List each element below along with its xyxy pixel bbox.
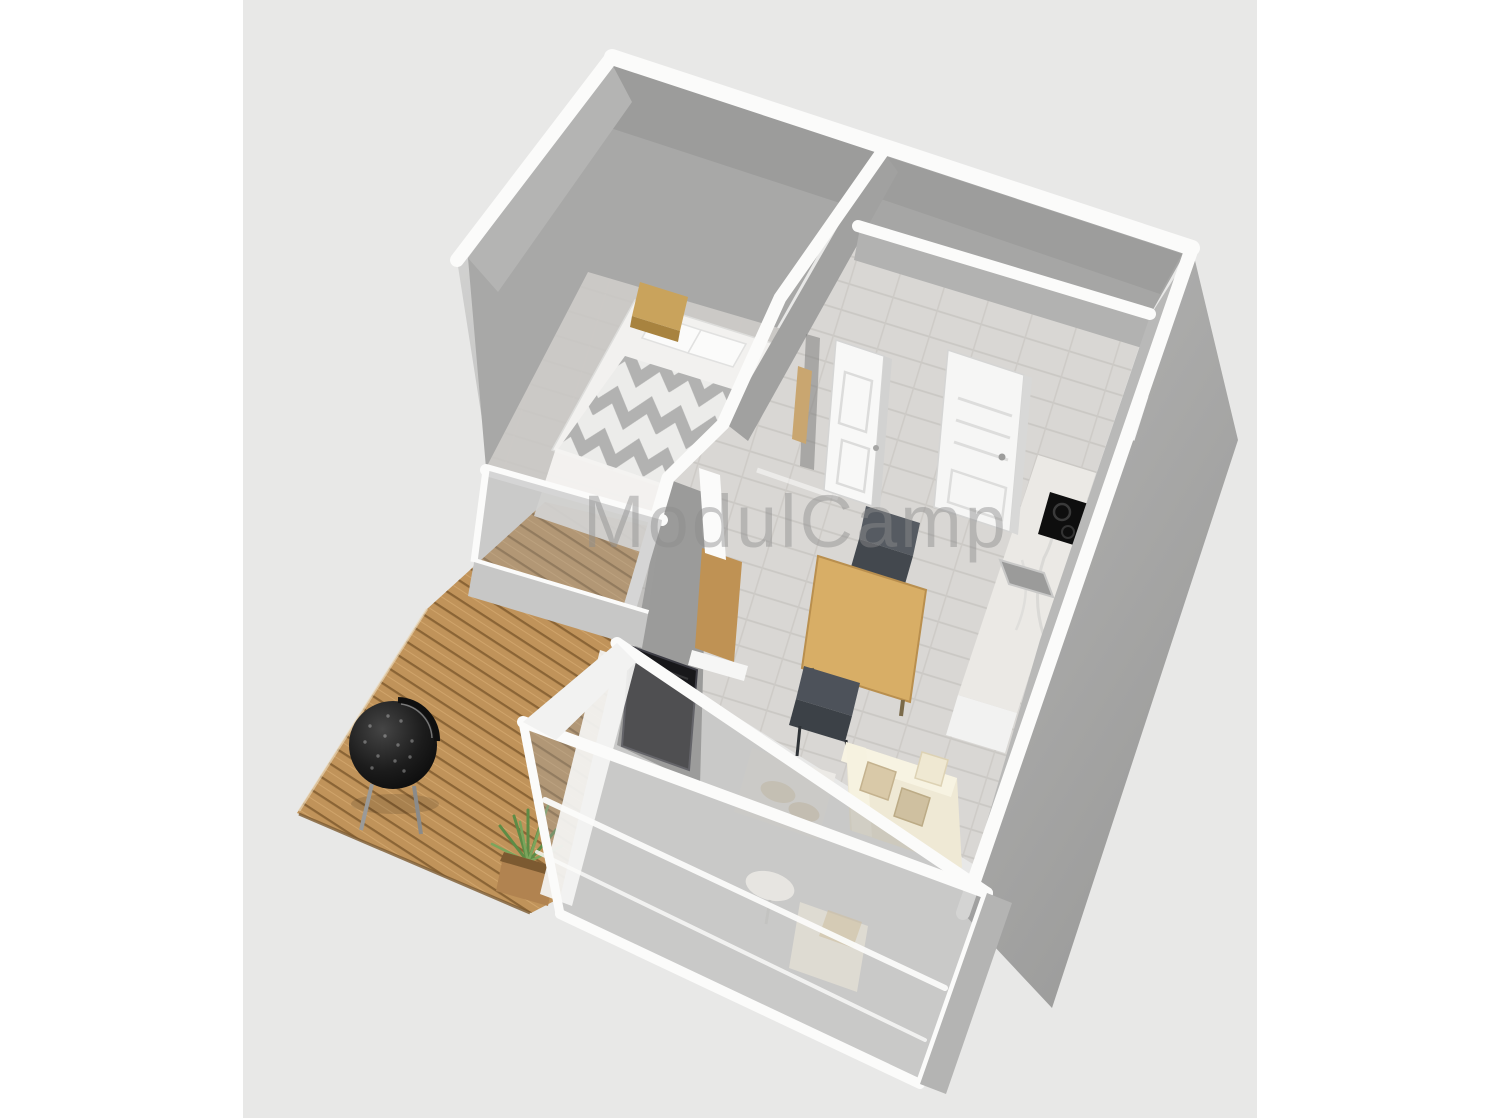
- floorplan-render: ModulCamp: [0, 0, 1500, 1118]
- entry-doorway-deck-view: [695, 548, 742, 662]
- floorplan-render-page: ModulCamp: [0, 0, 1500, 1118]
- table-leg: [901, 700, 903, 716]
- door-handle: [999, 454, 1006, 461]
- watermark-text: ModulCamp: [583, 480, 1009, 563]
- door-handle: [873, 445, 879, 451]
